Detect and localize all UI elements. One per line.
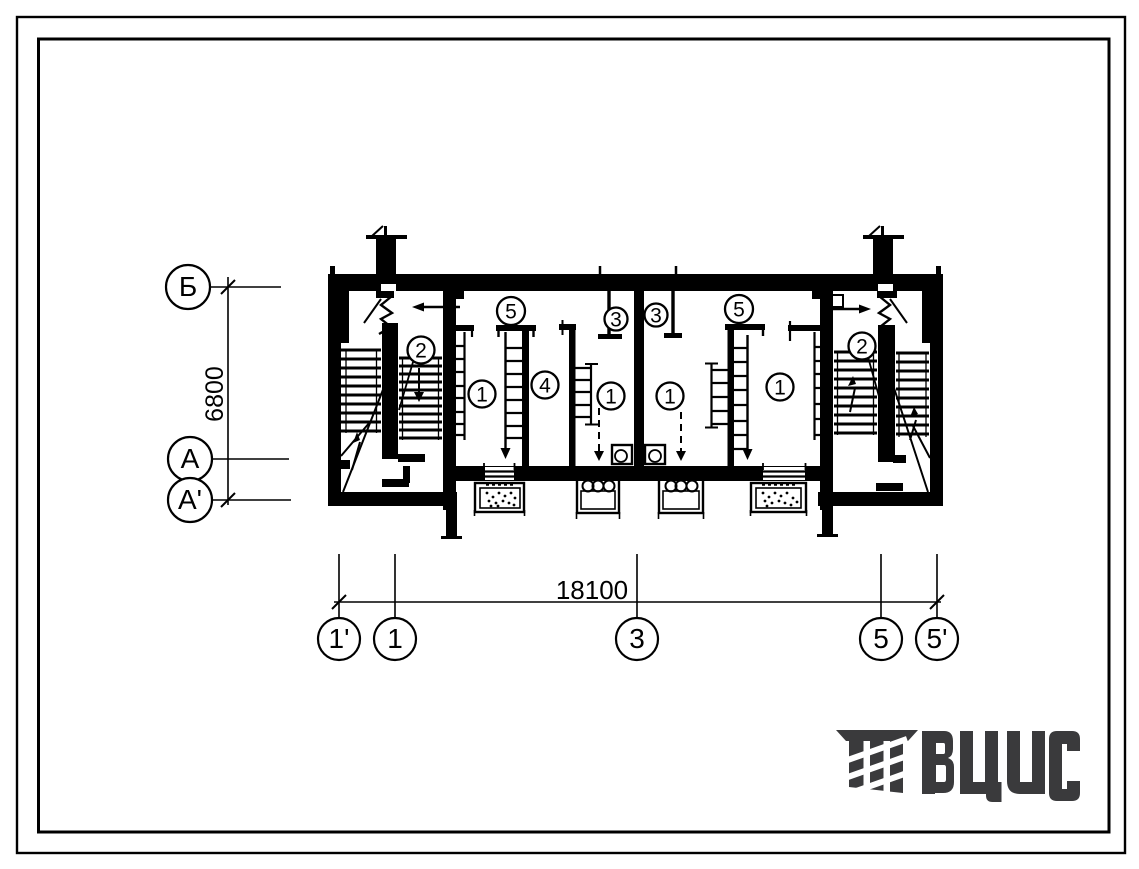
svg-text:2: 2 <box>415 340 427 363</box>
svg-text:1: 1 <box>476 384 488 407</box>
svg-text:1': 1' <box>329 623 350 654</box>
svg-text:18100: 18100 <box>556 575 628 605</box>
svg-text:5: 5 <box>505 301 517 324</box>
svg-text:5: 5 <box>733 299 745 322</box>
svg-text:6800: 6800 <box>201 366 229 422</box>
svg-text:2: 2 <box>856 336 868 359</box>
svg-text:А': А' <box>178 484 202 515</box>
svg-text:1: 1 <box>605 386 617 409</box>
svg-text:1: 1 <box>774 377 786 400</box>
svg-text:3: 3 <box>629 623 645 654</box>
svg-text:4: 4 <box>539 375 551 398</box>
svg-text:5: 5 <box>873 623 889 654</box>
svg-text:А: А <box>181 443 200 474</box>
svg-text:1: 1 <box>387 623 403 654</box>
svg-text:Б: Б <box>179 271 197 302</box>
svg-text:3: 3 <box>610 309 622 332</box>
svg-text:3: 3 <box>650 305 662 328</box>
svg-text:1: 1 <box>664 386 676 409</box>
svg-text:5': 5' <box>927 623 948 654</box>
